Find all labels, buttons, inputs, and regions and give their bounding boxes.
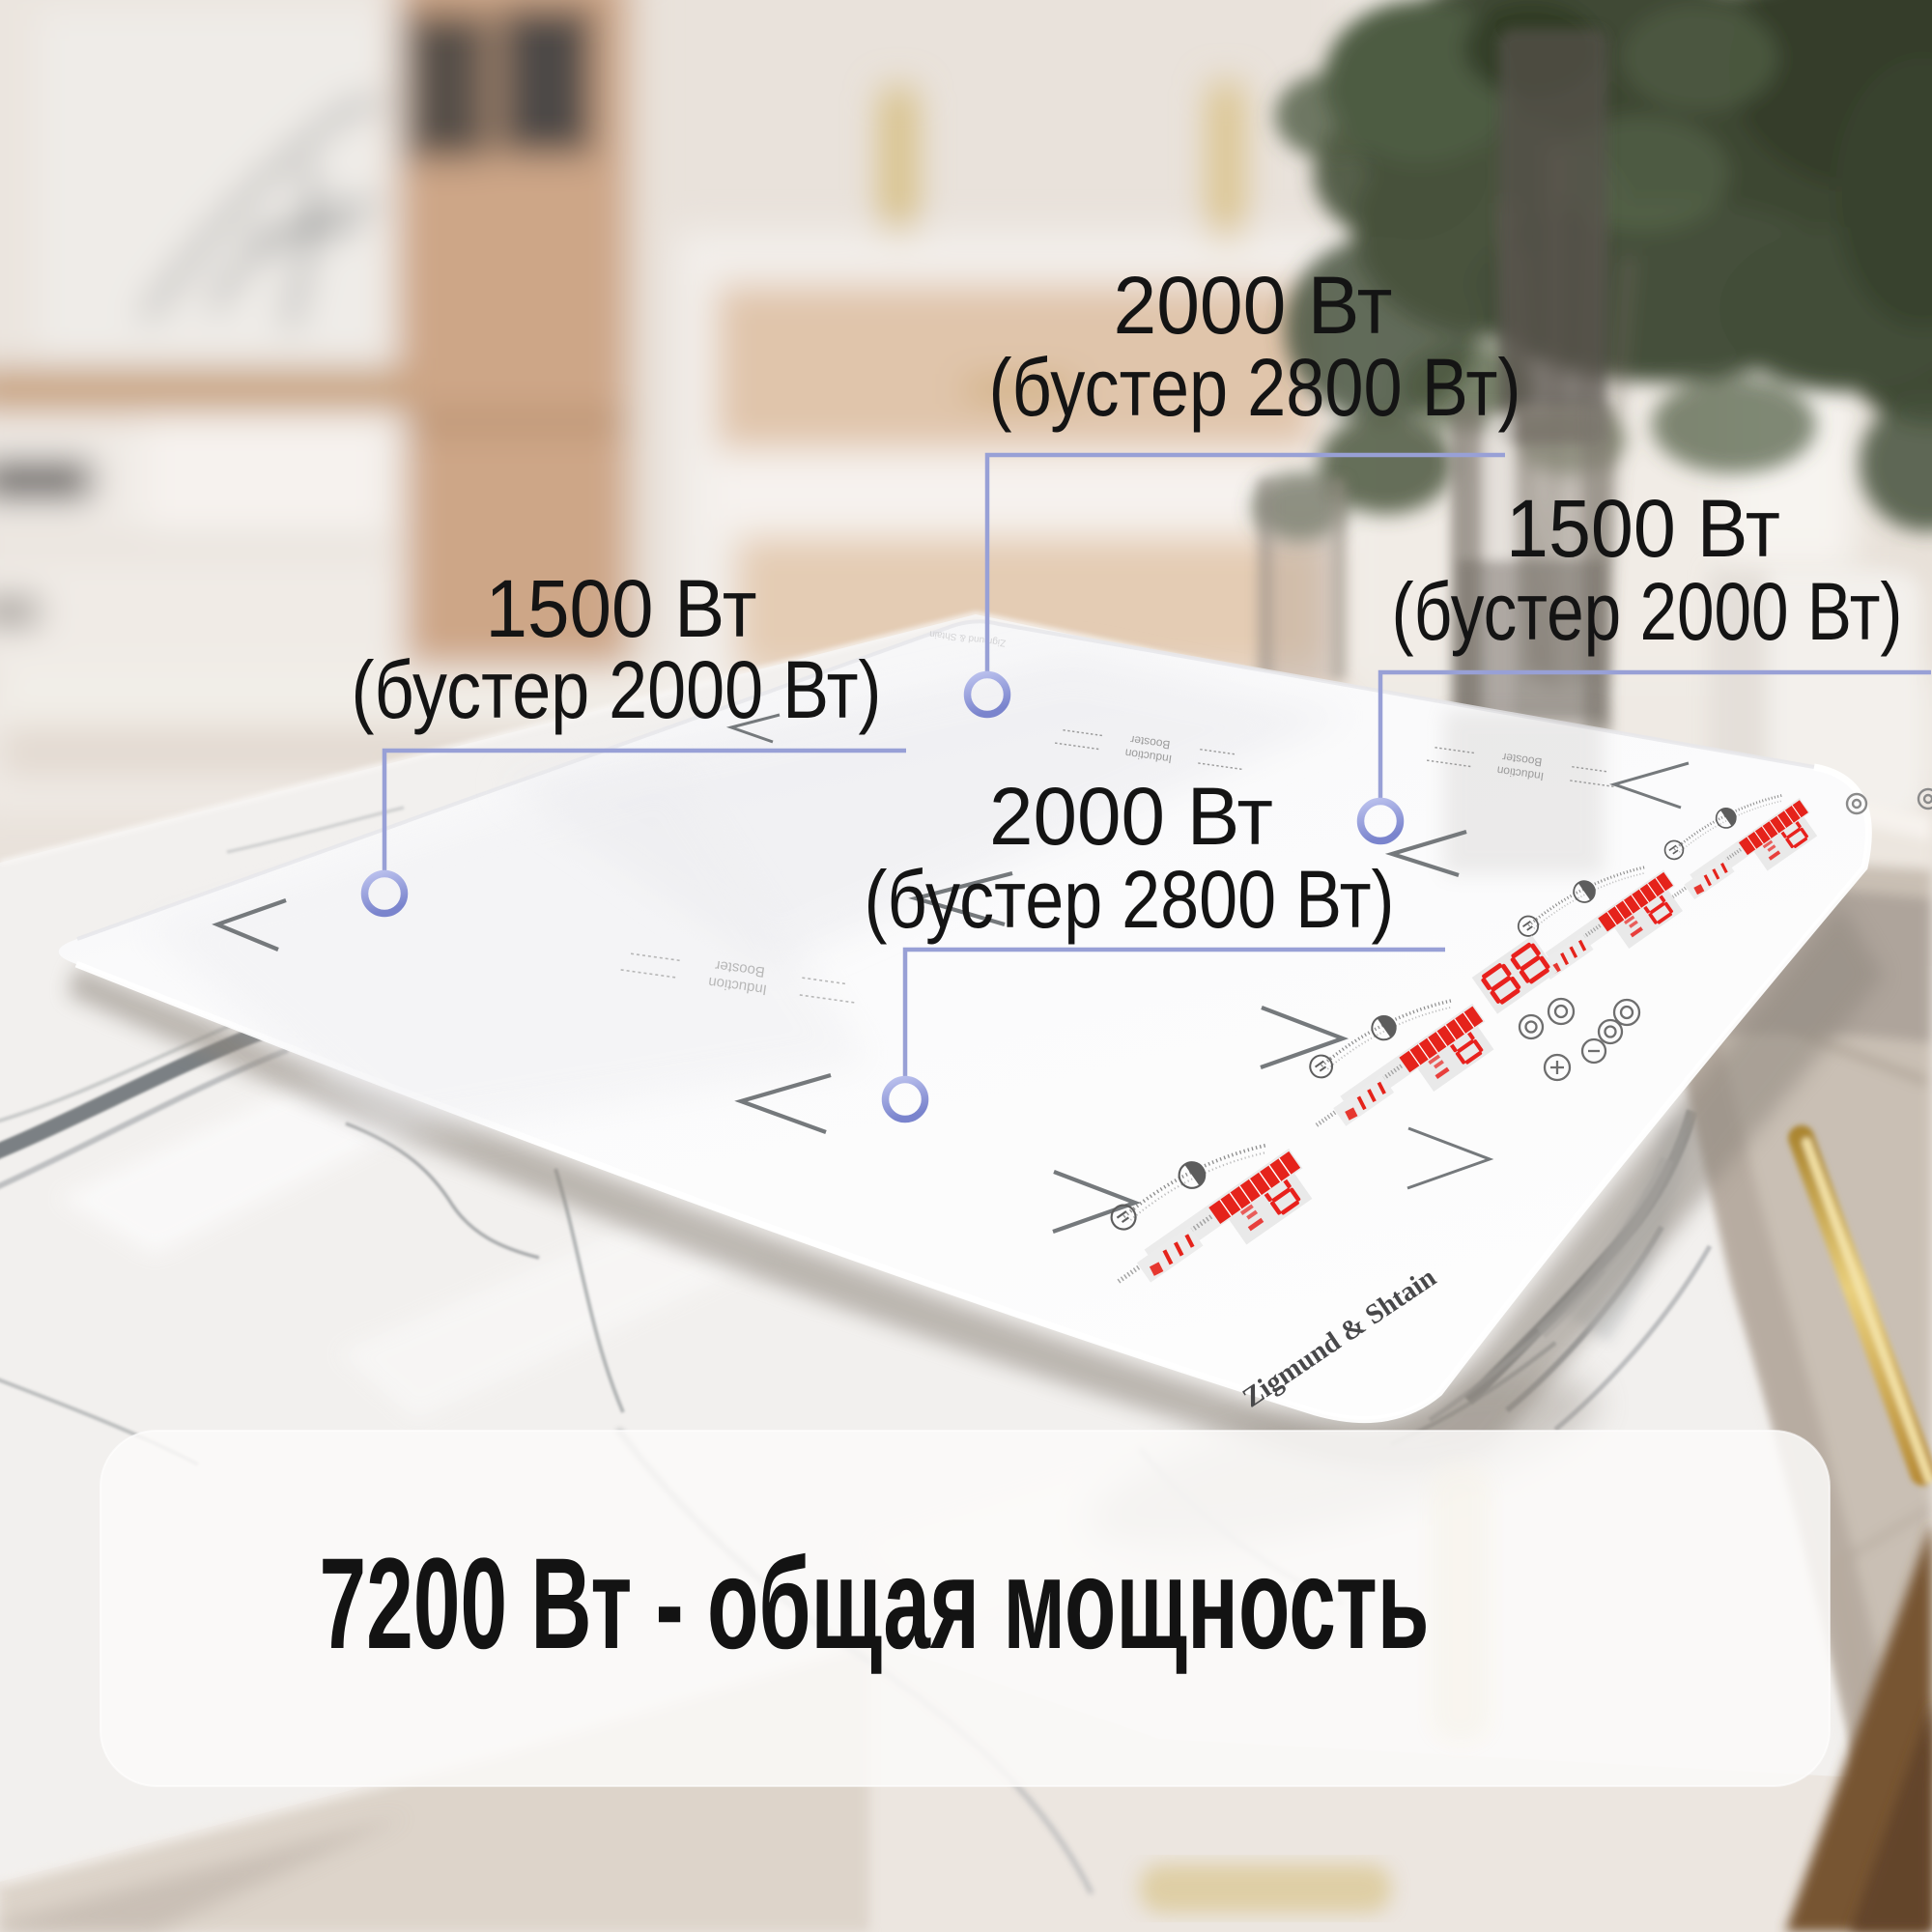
svg-text:(бустер 2000 Вт): (бустер 2000 Вт) xyxy=(1392,566,1903,657)
svg-text:(бустер 2800 Вт): (бустер 2800 Вт) xyxy=(865,854,1395,945)
svg-text:(бустер 2000 Вт): (бустер 2000 Вт) xyxy=(352,644,882,735)
svg-text:(бустер 2800 Вт): (бустер 2800 Вт) xyxy=(989,342,1521,433)
svg-text:2000 Вт: 2000 Вт xyxy=(989,771,1273,862)
svg-text:2000 Вт: 2000 Вт xyxy=(1114,260,1393,351)
svg-text:7200 Вт - общая мощность: 7200 Вт - общая мощность xyxy=(320,1532,1430,1676)
svg-text:1500 Вт: 1500 Вт xyxy=(486,563,757,654)
svg-text:1500 Вт: 1500 Вт xyxy=(1506,483,1780,574)
